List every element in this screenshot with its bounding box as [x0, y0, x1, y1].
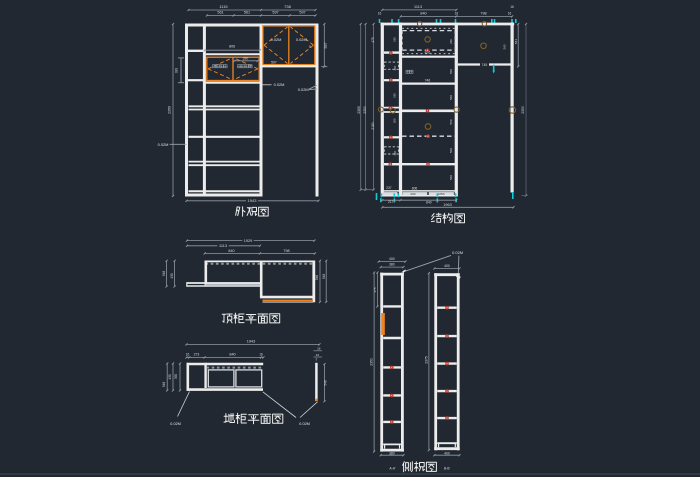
svg-text:798: 798 — [480, 11, 486, 15]
svg-text:16: 16 — [316, 353, 320, 357]
svg-text:260: 260 — [393, 65, 397, 70]
svg-text:475: 475 — [371, 37, 375, 43]
svg-text:430: 430 — [170, 273, 174, 279]
svg-text:2180: 2180 — [371, 122, 375, 130]
svg-text:16: 16 — [510, 5, 514, 9]
svg-text:0.02M: 0.02M — [158, 142, 169, 147]
svg-text:260: 260 — [393, 150, 397, 155]
svg-text:806: 806 — [412, 186, 418, 190]
svg-text:2350: 2350 — [370, 358, 374, 366]
svg-text:560: 560 — [449, 119, 453, 124]
svg-text:1113: 1113 — [414, 5, 422, 9]
svg-text:380: 380 — [389, 451, 395, 455]
svg-text:217: 217 — [388, 200, 394, 204]
svg-text:541: 541 — [514, 39, 518, 44]
svg-text:390: 390 — [243, 57, 249, 61]
svg-text:202: 202 — [410, 192, 415, 196]
svg-text:548: 548 — [162, 382, 166, 388]
svg-text:597: 597 — [324, 43, 328, 49]
svg-text:560: 560 — [449, 95, 453, 100]
svg-text:260: 260 — [393, 93, 397, 98]
svg-text:0.02M: 0.02M — [296, 37, 307, 42]
svg-text:1943: 1943 — [247, 340, 255, 344]
svg-text:430: 430 — [168, 374, 172, 380]
svg-text:738: 738 — [284, 4, 291, 9]
svg-text:840: 840 — [228, 249, 234, 253]
svg-text:840: 840 — [426, 200, 432, 204]
svg-text:237: 237 — [386, 186, 392, 190]
svg-text:745: 745 — [482, 63, 488, 67]
svg-text:597: 597 — [271, 60, 277, 64]
svg-text:597: 597 — [299, 10, 305, 14]
svg-text:560: 560 — [449, 148, 453, 153]
svg-text:5: 5 — [309, 45, 311, 49]
svg-text:273: 273 — [194, 352, 200, 356]
svg-text:260: 260 — [393, 118, 397, 123]
svg-text:597: 597 — [272, 10, 278, 14]
svg-text:560: 560 — [503, 44, 507, 49]
svg-text:560: 560 — [449, 175, 453, 180]
svg-text:1943: 1943 — [248, 198, 258, 203]
svg-text:0.02M: 0.02M — [298, 87, 309, 92]
svg-text:260: 260 — [449, 39, 453, 44]
svg-text:400: 400 — [444, 451, 450, 455]
svg-text:2350: 2350 — [167, 106, 171, 114]
svg-text:A-A': A-A' — [389, 467, 396, 471]
svg-text:2375: 2375 — [425, 356, 429, 364]
svg-text:383: 383 — [175, 68, 179, 74]
svg-text:0.02M: 0.02M — [274, 82, 285, 87]
svg-text:1113: 1113 — [219, 244, 227, 248]
svg-text:560: 560 — [449, 69, 453, 74]
svg-text:475: 475 — [373, 287, 377, 292]
svg-text:400: 400 — [444, 264, 450, 268]
svg-text:260: 260 — [393, 37, 397, 42]
svg-text:B-B': B-B' — [444, 467, 451, 471]
svg-text:0.02M: 0.02M — [271, 37, 282, 42]
svg-text:400: 400 — [389, 257, 395, 261]
svg-text:546: 546 — [315, 275, 319, 281]
svg-text:1253: 1253 — [438, 192, 445, 196]
svg-text:0.02M: 0.02M — [452, 250, 463, 255]
svg-text:1929: 1929 — [244, 239, 252, 243]
svg-text:16: 16 — [508, 11, 512, 15]
svg-text:840: 840 — [229, 352, 235, 356]
svg-text:548: 548 — [322, 274, 326, 280]
svg-text:16: 16 — [259, 352, 263, 356]
svg-text:0.02M: 0.02M — [170, 421, 181, 426]
svg-text:806: 806 — [229, 45, 235, 49]
svg-text:746: 746 — [425, 78, 431, 82]
svg-text:390: 390 — [174, 374, 178, 380]
svg-text:548: 548 — [162, 271, 166, 277]
svg-text:1115: 1115 — [219, 4, 228, 9]
svg-text:840: 840 — [420, 11, 426, 15]
svg-text:546: 546 — [323, 380, 327, 386]
svg-text:561: 561 — [217, 10, 223, 14]
svg-text:16: 16 — [317, 346, 321, 350]
svg-text:380: 380 — [389, 263, 395, 267]
svg-text:798: 798 — [283, 249, 289, 253]
svg-text:16: 16 — [455, 11, 459, 15]
svg-text:561: 561 — [244, 10, 250, 14]
svg-text:2365: 2365 — [357, 106, 361, 114]
svg-text:16: 16 — [378, 11, 382, 15]
svg-text:2350: 2350 — [521, 106, 525, 114]
svg-text:16: 16 — [186, 352, 190, 356]
svg-text:2350: 2350 — [363, 106, 367, 114]
svg-text:1963: 1963 — [443, 203, 451, 207]
svg-text:0.02M: 0.02M — [299, 421, 310, 426]
